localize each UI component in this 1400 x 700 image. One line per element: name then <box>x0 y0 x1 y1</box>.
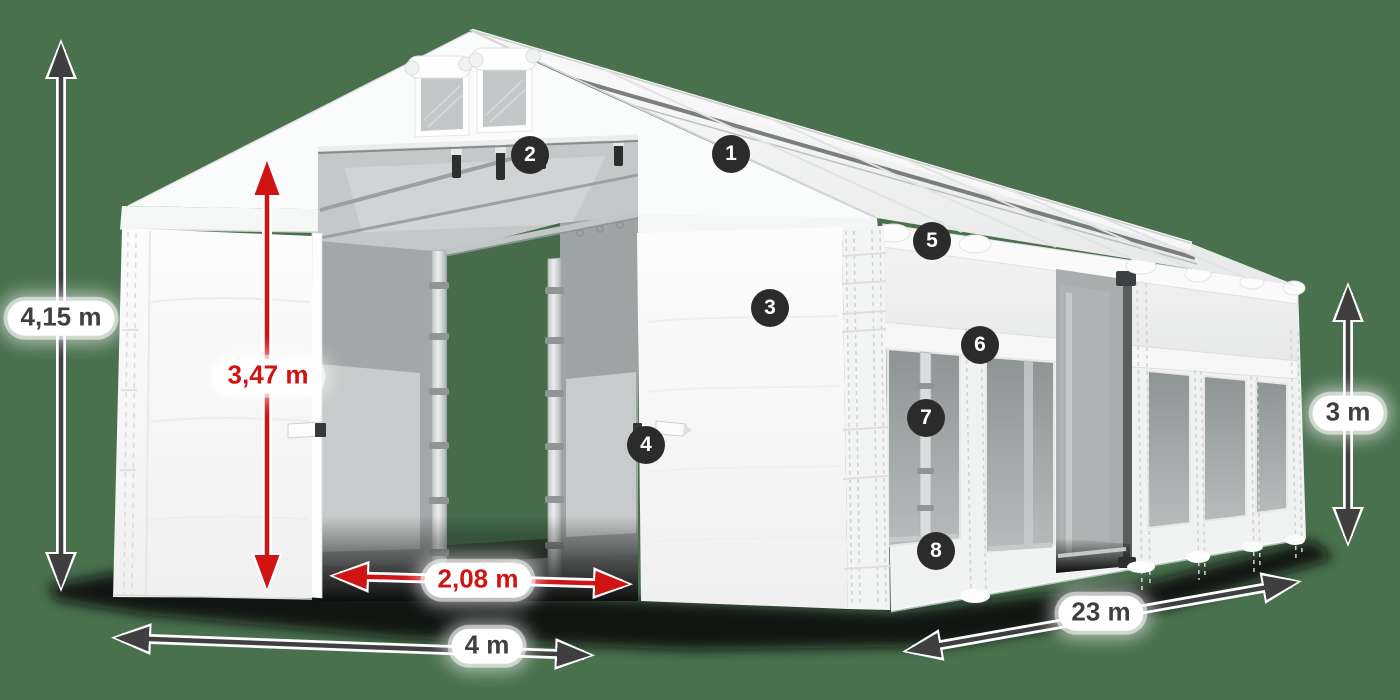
feature-badge-5[interactable]: 5 <box>913 222 951 260</box>
feature-badge-1[interactable]: 1 <box>712 135 750 173</box>
side-window <box>1256 381 1287 513</box>
side-length-label: 23 m <box>1058 596 1143 631</box>
right-door-leaf <box>633 226 890 610</box>
entrance-width-label: 2,08 m <box>425 563 532 598</box>
entrance-height-label: 3,47 m <box>215 359 322 394</box>
side-door-opening <box>1056 269 1136 573</box>
feature-badge-6[interactable]: 6 <box>961 326 999 364</box>
product-diagram-stage: 4,15 m 3,47 m 2,08 m 4 m 23 m 3 m 1 2 3 … <box>0 0 1400 700</box>
front-opening-interior <box>310 137 638 602</box>
left-door-leaf <box>113 228 326 599</box>
side-window <box>1148 371 1190 528</box>
side-height-label: 3 m <box>1313 396 1384 431</box>
total-height-label: 4,15 m <box>8 301 115 336</box>
tent-illustration <box>0 0 1400 700</box>
front-width-label: 4 m <box>452 629 523 664</box>
feature-badge-3[interactable]: 3 <box>751 289 789 327</box>
side-window <box>1204 376 1246 521</box>
feature-badge-8[interactable]: 8 <box>917 532 955 570</box>
feature-badge-4[interactable]: 4 <box>627 426 665 464</box>
feature-badge-2[interactable]: 2 <box>511 136 549 174</box>
feature-badge-7[interactable]: 7 <box>907 399 945 437</box>
side-window <box>986 357 1054 552</box>
